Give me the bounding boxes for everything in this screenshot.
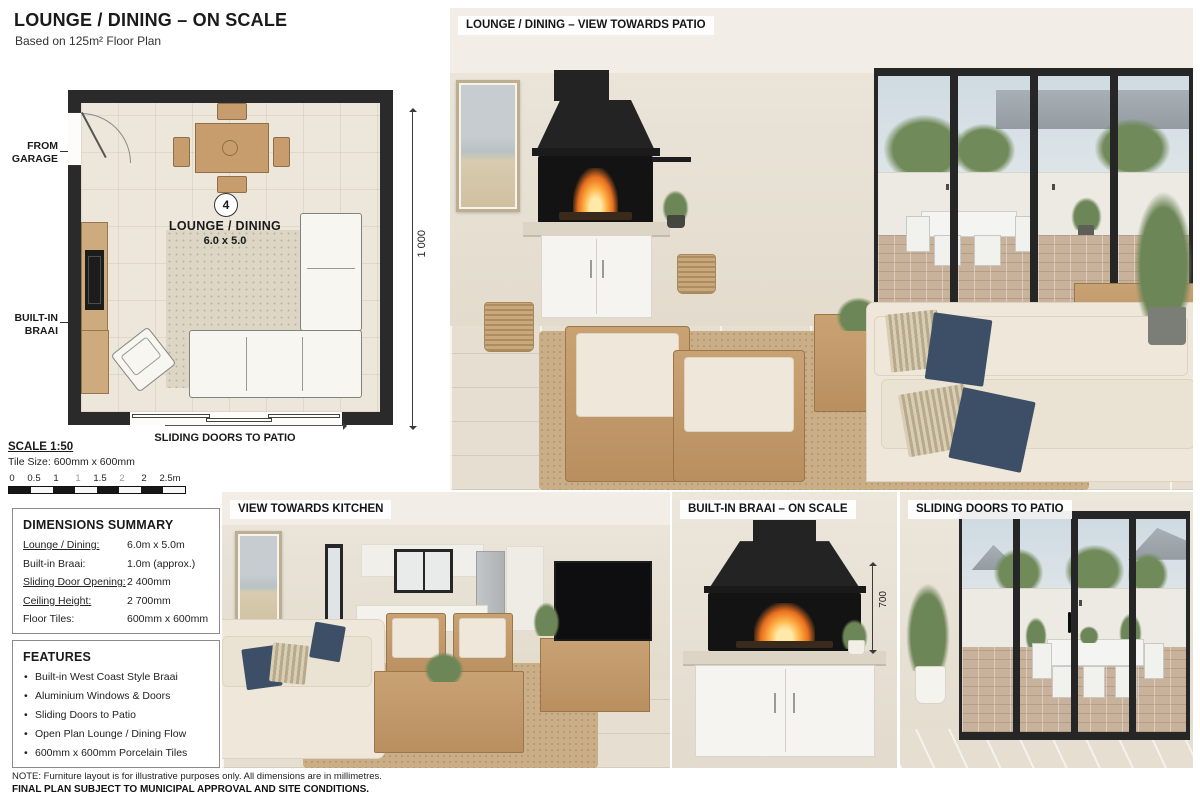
tree — [1095, 119, 1170, 172]
tall-plant-pot — [1148, 307, 1185, 346]
dimensions-summary-box: DIMENSIONS SUMMARY Lounge / Dining: 6.0m… — [12, 508, 220, 634]
disclaimer-line: FINAL PLAN SUBJECT TO MUNICIPAL APPROVAL… — [12, 784, 369, 795]
scale-title: SCALE 1:50 — [8, 441, 228, 453]
photo-caption: VIEW TOWARDS KITCHEN — [230, 500, 391, 519]
dim-label: Lounge / Dining: — [23, 539, 127, 551]
fire — [754, 603, 815, 644]
tile-size-note: Tile Size: 600mm x 600mm — [8, 456, 228, 468]
garage-door-opening — [68, 112, 81, 166]
plan-dining-chair — [217, 176, 247, 193]
dim-value: 600mm x 600mm — [127, 613, 209, 625]
wicker-basket — [677, 254, 716, 295]
door-mullion — [950, 68, 958, 326]
feature-item: 600mm x 600mm Porcelain Tiles — [23, 747, 209, 759]
photo-caption: SLIDING DOORS TO PATIO — [908, 500, 1072, 519]
features-list: Built-in West Coast Style Braai Aluminiu… — [23, 671, 209, 759]
photo-caption: LOUNGE / DINING – VIEW TOWARDS PATIO — [458, 16, 714, 35]
wall-art — [456, 80, 520, 211]
photo-patio-doors: SLIDING DOORS TO PATIO — [900, 492, 1193, 768]
dimension-row: Ceiling Height: 2 700mm — [23, 595, 209, 607]
wicker-basket — [484, 302, 534, 352]
plant-pot — [667, 215, 685, 228]
wall-art — [235, 531, 281, 634]
logs — [736, 641, 834, 648]
dimension-row: Built-in Braai: 1.0m (approx.) — [23, 558, 209, 570]
dim-value: 2 400mm — [127, 576, 209, 588]
dim-label: Floor Tiles: — [23, 613, 127, 625]
scale-tick: 1 — [53, 473, 58, 484]
scale-bar — [8, 486, 186, 494]
outdoor-chair — [974, 235, 1001, 266]
label-from-garage: FROM GARAGE — [8, 140, 58, 166]
braai-chimney — [554, 70, 609, 101]
page-title: LOUNGE / DINING – ON SCALE — [14, 10, 287, 31]
braai-hood-band — [704, 586, 866, 593]
presentation-board: LOUNGE / DINING – ON SCALE Based on 125m… — [0, 0, 1200, 800]
photo-kitchen-view: VIEW TOWARDS KITCHEN — [222, 492, 670, 768]
scale-tick: 0.5 — [27, 473, 40, 484]
door-mullion — [1129, 511, 1136, 740]
floor-plan: 6 000 1 000 FROM GARAGE BUILT-IN BRAAI — [0, 50, 445, 450]
scale-block: SCALE 1:50 Tile Size: 600mm x 600mm 0 0.… — [8, 441, 228, 494]
braai-cabinet — [695, 665, 875, 757]
dim-label: Ceiling Height: — [23, 595, 127, 607]
door-handle — [1068, 612, 1071, 633]
scale-tick: 2 — [119, 473, 124, 484]
plant-pot — [915, 666, 946, 704]
plant-pot — [848, 640, 866, 656]
coffee-table — [374, 671, 524, 753]
tall-plant — [1134, 191, 1193, 316]
braai-cabinet — [541, 235, 652, 318]
braai-hood-band — [532, 148, 660, 157]
tree — [953, 124, 1015, 172]
braai-firebox — [538, 156, 652, 223]
sliding-panel — [268, 414, 340, 418]
scale-bar-labels: 0 0.5 1 1 1.5 2 2 2.5m — [8, 473, 228, 485]
sliding-door-unit — [959, 511, 1190, 740]
braai-rail — [652, 157, 691, 161]
sliding-door-indicator-line — [165, 425, 345, 426]
tv — [554, 561, 653, 641]
braai-firebox — [708, 593, 861, 651]
photo-braai: 700 BUILT-IN BRAAI – ON SCALE — [672, 492, 897, 768]
scale-tick: 2 — [141, 473, 146, 484]
photo-main-lounge: LOUNGE / DINING – VIEW TOWARDS PATIO — [450, 8, 1193, 490]
table-centerpiece — [1079, 626, 1099, 643]
braai-dimension-line — [872, 564, 873, 652]
dim-value: 2 700mm — [127, 595, 209, 607]
label-built-in-braai: BUILT-IN BRAAI — [2, 312, 58, 338]
dimension-line-right — [412, 110, 413, 428]
door-mullion — [1030, 68, 1038, 326]
dim-label: Sliding Door Opening: — [23, 576, 127, 588]
wall-sconce — [1079, 600, 1082, 606]
dimensions-summary-title: DIMENSIONS SUMMARY — [23, 518, 209, 532]
feature-item: Open Plan Lounge / Dining Flow — [23, 728, 209, 740]
outdoor-chair — [1032, 643, 1052, 679]
scale-tick: 0 — [9, 473, 14, 484]
plan-dining-chair — [173, 137, 190, 167]
scale-tick: 2.5m — [159, 473, 180, 484]
plan-dining-chair — [273, 137, 290, 167]
outdoor-table — [921, 211, 1016, 237]
outdoor-chair — [906, 216, 930, 252]
tv-console — [540, 638, 650, 712]
plan-height-dimension: 1 000 — [416, 230, 428, 258]
plan-outline: 4 LOUNGE / DINING 6.0 x 5.0 — [68, 90, 393, 425]
room-size: 6.0 x 5.0 — [135, 235, 315, 247]
features-title: FEATURES — [23, 650, 209, 664]
plan-dining-chair — [217, 103, 247, 120]
plan-side-console — [81, 330, 109, 394]
outdoor-chair — [1144, 643, 1164, 679]
plan-sofa — [189, 330, 362, 398]
dim-label: Built-in Braai: — [23, 558, 127, 570]
logs — [559, 212, 632, 220]
dimension-row: Lounge / Dining: 6.0m x 5.0m — [23, 539, 209, 551]
door-mullion — [1071, 511, 1078, 740]
wall-sconce — [946, 184, 949, 190]
plan-dining-table — [195, 123, 269, 173]
plant — [533, 602, 560, 635]
sliding-panel — [206, 418, 272, 422]
photo-caption: BUILT-IN BRAAI – ON SCALE — [680, 500, 856, 519]
dim-value: 6.0m x 5.0m — [127, 539, 209, 551]
braai-dimension-label: 700 — [878, 591, 889, 608]
plan-braai-firebox — [85, 250, 104, 310]
room-name: LOUNGE / DINING — [135, 219, 315, 233]
kitchen-window — [394, 549, 452, 593]
wall-sconce — [1052, 184, 1055, 190]
feature-item: Built-in West Coast Style Braai — [23, 671, 209, 683]
outdoor-chair — [1083, 666, 1105, 698]
dimension-row: Floor Tiles: 600mm x 600mm — [23, 613, 209, 625]
feature-item: Aluminium Windows & Doors — [23, 690, 209, 702]
features-box: FEATURES Built-in West Coast Style Braai… — [12, 640, 220, 768]
dimension-row: Sliding Door Opening: 2 400mm — [23, 576, 209, 588]
room-number-badge: 4 — [214, 193, 238, 217]
scale-tick: 1 — [75, 473, 80, 484]
dim-value: 1.0m (approx.) — [127, 558, 209, 570]
sliding-panel — [132, 414, 210, 418]
coffee-table-plant — [424, 652, 464, 682]
note-line: NOTE: Furniture layout is for illustrati… — [12, 771, 382, 782]
braai-chimney — [753, 520, 816, 542]
tall-plant — [906, 583, 950, 671]
door-mullion — [1013, 511, 1020, 740]
feature-item: Sliding Doors to Patio — [23, 709, 209, 721]
fire — [573, 168, 619, 215]
scale-tick: 1.5 — [93, 473, 106, 484]
page-subtitle: Based on 125m² Floor Plan — [15, 34, 161, 48]
